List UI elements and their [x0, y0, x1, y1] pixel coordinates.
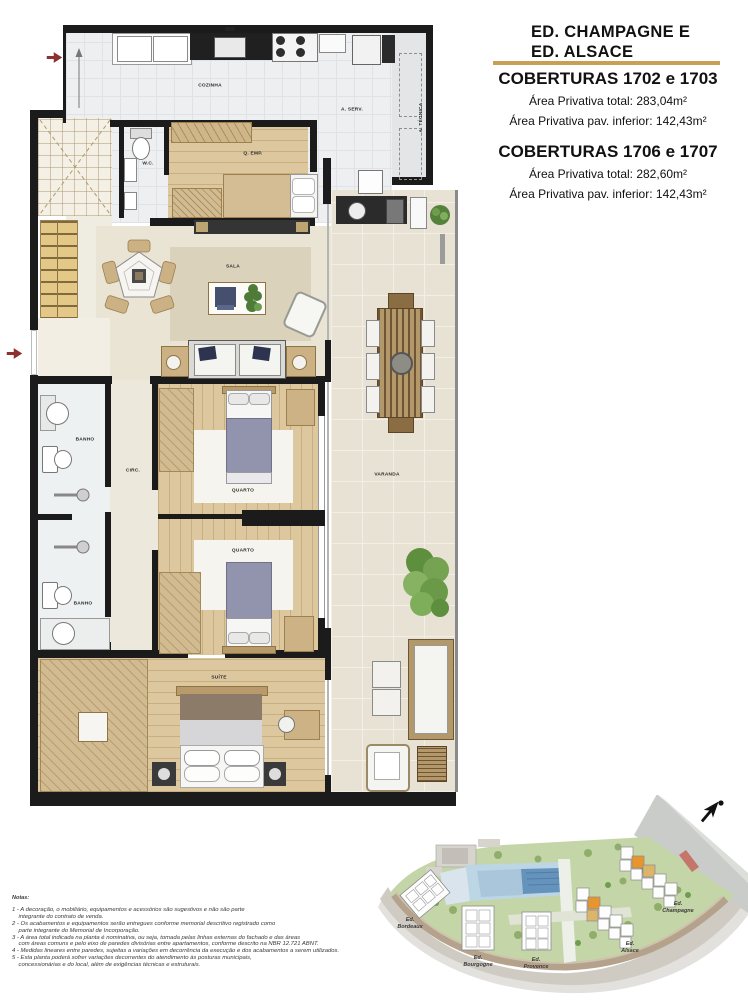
- svg-text:Ed.: Ed.: [406, 917, 415, 923]
- svg-text:Bourgogne: Bourgogne: [463, 962, 492, 968]
- svg-text:Ed.: Ed.: [626, 941, 635, 947]
- svg-text:Provence: Provence: [524, 964, 549, 970]
- svg-text:Champagne: Champagne: [662, 908, 693, 914]
- svg-text:Alsace: Alsace: [620, 948, 639, 954]
- svg-text:Ed.: Ed.: [474, 955, 483, 961]
- svg-text:Ed.: Ed.: [532, 957, 541, 963]
- svg-text:Bordeaux: Bordeaux: [397, 924, 423, 930]
- svg-text:Ed.: Ed.: [674, 901, 683, 907]
